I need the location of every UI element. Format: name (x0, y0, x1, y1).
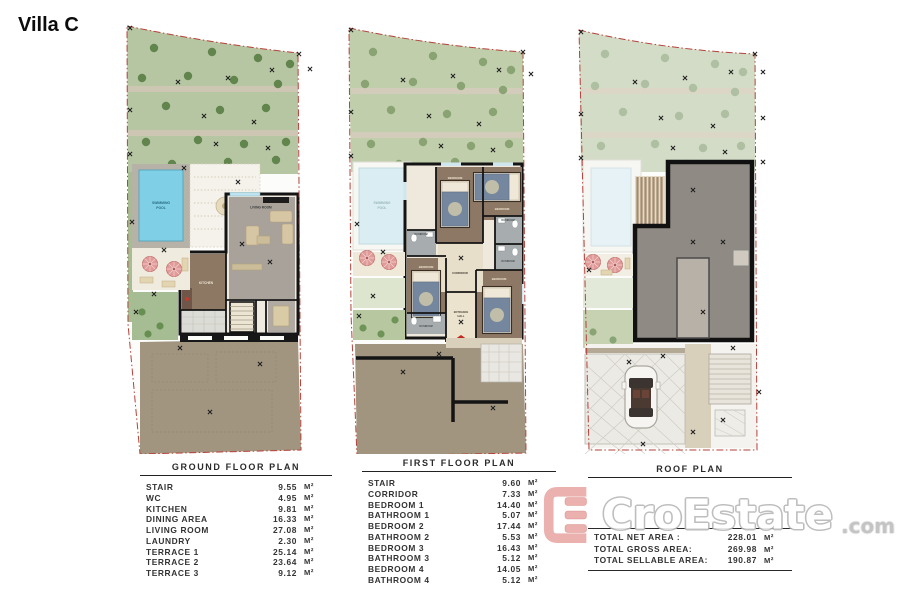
room-name: BEDROOM 2 (368, 521, 485, 532)
dining-room (268, 300, 295, 332)
area-unit: M² (521, 564, 550, 575)
table-row: WC4.95M² (140, 493, 332, 504)
room-name: BATHROOM 3 (368, 553, 485, 564)
room-name: BEDROOM 1 (368, 500, 485, 511)
table-row: BEDROOM 217.44M² (362, 521, 556, 532)
total-name: TOTAL GROSS AREA: (594, 544, 721, 556)
room-area: 23.64 (261, 557, 297, 568)
table-row: LIVING ROOM27.08M² (140, 525, 332, 536)
exterior-stairs (709, 354, 751, 404)
room-name: BEDROOM 3 (368, 543, 485, 554)
area-unit: M² (521, 500, 550, 511)
room-area: 5.53 (485, 532, 521, 543)
first-floor-table-title: FIRST FLOOR PLAN (362, 458, 556, 472)
room-area: 14.40 (485, 500, 521, 511)
roof-access-bulkhead (677, 258, 709, 338)
lower-garden-strip (132, 292, 178, 340)
room-name: BEDROOM 4 (368, 564, 485, 575)
table-row: LAUNDRY2.30M² (140, 536, 332, 547)
total-area: 228.01 (721, 532, 757, 544)
room-area: 4.95 (261, 493, 297, 504)
area-unit: M² (521, 489, 550, 500)
area-unit: M² (297, 504, 326, 515)
ground-floor-plan-drawing: SWIMMING POOL LIVING ROOM (120, 12, 322, 454)
area-unit: M² (297, 568, 326, 579)
sun-lounger (140, 277, 153, 283)
umbrella-terrace (583, 254, 633, 276)
area-unit: M² (757, 544, 786, 556)
table-row: KITCHEN9.81M² (140, 504, 332, 515)
side-terraces (353, 250, 405, 340)
room-area: 9.12 (261, 568, 297, 579)
room-area: 17.44 (485, 521, 521, 532)
total-name: TOTAL SELLABLE AREA: (594, 555, 721, 567)
table-row: BEDROOM 316.43M² (362, 543, 556, 554)
svg-text:BEDROOM: BEDROOM (419, 265, 434, 269)
ground-floor-table: GROUND FLOOR PLAN STAIR9.55M² WC4.95M² K… (140, 462, 332, 579)
total-area: 269.98 (721, 544, 757, 556)
roof-plan-table: ROOF PLAN TOTAL NET AREA :228.01M² TOTAL… (588, 464, 792, 571)
driveway-court (585, 344, 757, 454)
svg-text:BEDROOM: BEDROOM (495, 207, 510, 211)
area-unit: M² (757, 555, 786, 567)
table-row: BEDROOM 414.05M² (362, 564, 556, 575)
living-room-label: LIVING ROOM (250, 206, 272, 210)
croestate-logo-suffix: .com (841, 514, 895, 538)
svg-text:BATHROOM: BATHROOM (501, 219, 514, 222)
area-unit: M² (297, 557, 326, 568)
room-name: BATHROOM 4 (368, 575, 485, 586)
laundry-wc (182, 310, 226, 332)
car (622, 366, 660, 428)
table-row: BEDROOM 114.40M² (362, 500, 556, 511)
area-unit: M² (521, 510, 550, 521)
room-area: 27.08 (261, 525, 297, 536)
pool-label: SWIMMING (374, 201, 392, 205)
table-row: BATHROOM 35.12M² (362, 553, 556, 564)
area-unit: M² (521, 575, 550, 586)
room-name: LAUNDRY (146, 536, 261, 547)
room-name: KITCHEN (146, 504, 261, 515)
area-unit: M² (297, 514, 326, 525)
room-name: CORRIDOR (368, 489, 485, 500)
table-row: TOTAL SELLABLE AREA:190.87M² (588, 555, 792, 567)
table-row: STAIR9.60M² (362, 478, 556, 489)
area-unit: M² (297, 536, 326, 547)
ground-floor-table-title: GROUND FLOOR PLAN (140, 462, 332, 476)
side-terraces (583, 278, 633, 348)
window (404, 182, 407, 200)
house: BEDROOM BEDROOM BEDROOM BEDROOM BATHROOM… (404, 163, 524, 349)
table-row: TOTAL NET AREA :228.01M² (588, 532, 792, 544)
room-area: 16.43 (485, 543, 521, 554)
area-unit: M² (297, 547, 326, 558)
staircase (230, 302, 254, 332)
room-area: 9.55 (261, 482, 297, 493)
table-row: TERRACE 125.14M² (140, 547, 332, 558)
room-name: TERRACE 3 (146, 568, 261, 579)
driveway (140, 339, 301, 454)
dining-table (273, 306, 289, 326)
roof-plan-table-title: ROOF PLAN (588, 464, 792, 478)
page-title: Villa C (18, 14, 79, 37)
table-row: BATHROOM 15.07M² (362, 510, 556, 521)
pool-below: SWIMMING POOL (353, 162, 411, 250)
parking-hatch (481, 344, 522, 382)
bedroom-label: BEDROOM (448, 176, 463, 180)
pool-label: SWIMMING (152, 201, 170, 205)
sun-lounger (625, 258, 630, 269)
table-row: STAIR9.55M² (140, 482, 332, 493)
sun-lounger (162, 281, 175, 287)
window (493, 163, 513, 167)
room-name: BATHROOM 2 (368, 532, 485, 543)
umbrella-terrace (132, 248, 190, 290)
corridor-label: CORRIDOR (452, 271, 469, 275)
area-unit: M² (297, 482, 326, 493)
house-bottom-wall (180, 334, 298, 342)
table-row: BATHROOM 25.53M² (362, 532, 556, 543)
sun-lounger (601, 270, 612, 275)
svg-text:BATHROOM: BATHROOM (501, 260, 514, 263)
pool-below (583, 160, 641, 252)
room-area: 25.14 (261, 547, 297, 558)
room-area: 9.60 (485, 478, 521, 489)
court-wall (585, 348, 685, 353)
room-area: 5.12 (485, 575, 521, 586)
room-name: BATHROOM 1 (368, 510, 485, 521)
sun-lounger (182, 258, 188, 271)
area-totals: TOTAL NET AREA :228.01M² TOTAL GROSS ARE… (588, 528, 792, 571)
villa-floorplan-sheet: Villa C SWIMMING POOL (0, 0, 900, 600)
room-area: 5.07 (485, 510, 521, 521)
room-name: LIVING ROOM (146, 525, 261, 536)
table-row: TERRACE 223.64M² (140, 557, 332, 568)
room-name: WC (146, 493, 261, 504)
entrance-hall-label: ENTRANCE (454, 310, 469, 314)
room-area: 7.33 (485, 489, 521, 500)
table-row: TERRACE 39.12M² (140, 568, 332, 579)
table-row: BATHROOM 45.12M² (362, 575, 556, 586)
total-area: 190.87 (721, 555, 757, 567)
window (441, 163, 461, 167)
area-unit: M² (521, 521, 550, 532)
tv-unit (263, 197, 289, 203)
room-area: 5.12 (485, 553, 521, 564)
first-floor-plan-drawing: SWIMMING POOL (343, 12, 535, 454)
table-row: CORRIDOR7.33M² (362, 489, 556, 500)
first-floor-table: FIRST FLOOR PLAN STAIR9.60M² CORRIDOR7.3… (362, 458, 556, 586)
kitchen-label: KITCHEN (199, 281, 214, 285)
room-area: 2.30 (261, 536, 297, 547)
area-unit: M² (521, 532, 550, 543)
svg-text:POOL: POOL (377, 206, 386, 210)
room-area: 14.05 (485, 564, 521, 575)
svg-text:POOL: POOL (156, 206, 166, 210)
svg-text:BATHROOM: BATHROOM (419, 325, 432, 328)
swimming-pool: SWIMMING POOL (132, 164, 190, 248)
area-unit: M² (521, 478, 550, 489)
window (230, 193, 260, 197)
total-name: TOTAL NET AREA : (594, 532, 721, 544)
room-name: STAIR (368, 478, 485, 489)
room-name: STAIR (146, 482, 261, 493)
area-unit: M² (757, 532, 786, 544)
area-unit: M² (297, 525, 326, 536)
room-name: TERRACE 2 (146, 557, 261, 568)
svg-text:BEDROOM: BEDROOM (492, 277, 507, 281)
area-unit: M² (297, 493, 326, 504)
room-name: DINING AREA (146, 514, 261, 525)
table-row: DINING AREA16.33M² (140, 514, 332, 525)
table-row: TOTAL GROSS AREA:269.98M² (588, 544, 792, 556)
roof-hatch (733, 250, 749, 266)
area-unit: M² (521, 543, 550, 554)
walkway (685, 344, 711, 448)
room-area: 9.81 (261, 504, 297, 515)
svg-text:HALL: HALL (458, 314, 465, 318)
room-area: 16.33 (261, 514, 297, 525)
bathroom-label: BATHROOM (414, 233, 427, 236)
stove (185, 297, 189, 301)
room-name: TERRACE 1 (146, 547, 261, 558)
roof-plan-drawing (573, 12, 769, 454)
area-unit: M² (521, 553, 550, 564)
small-hatch-pad (715, 410, 745, 436)
